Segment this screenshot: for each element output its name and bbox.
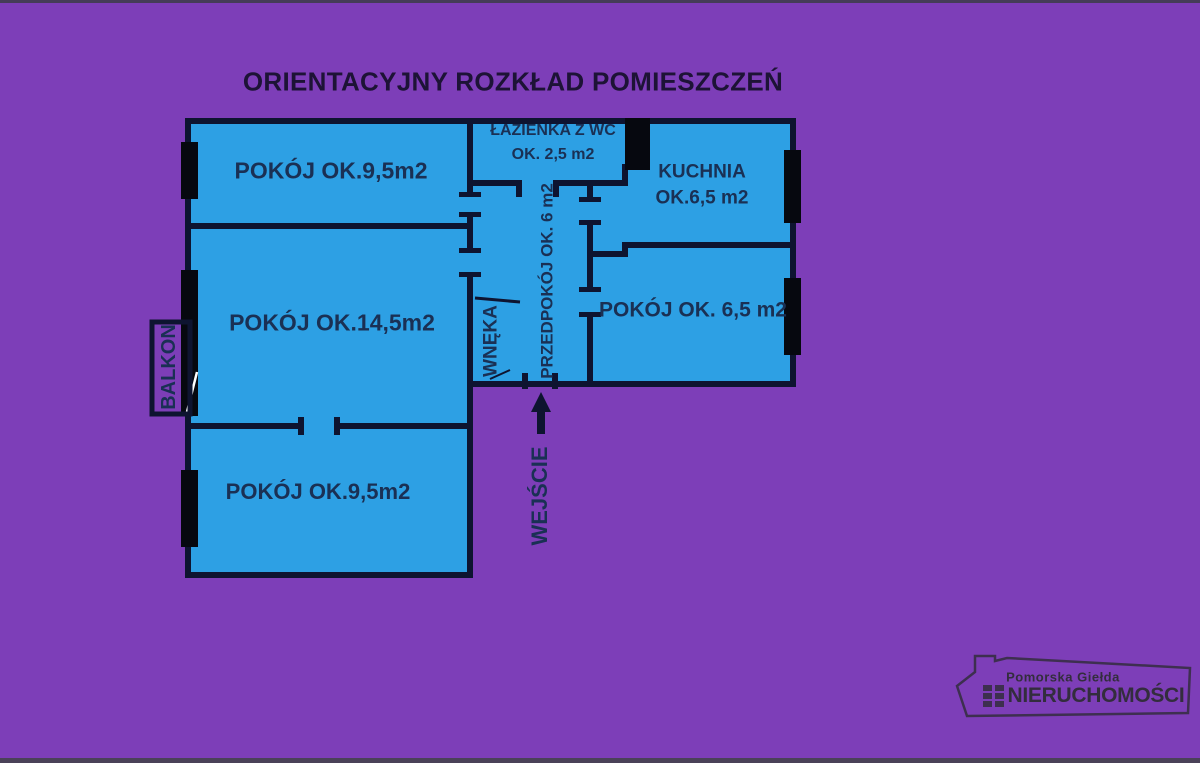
label-entrance: WEJŚCIE [529, 446, 551, 545]
label-kitchen-area: OK.6,5 m2 [656, 189, 749, 208]
window-kitchen [784, 150, 801, 223]
ventilation-shaft [625, 118, 650, 170]
logo-window-icon [983, 685, 1004, 707]
floorplan-drawing [0, 0, 1200, 763]
entrance-arrow-icon [531, 392, 551, 434]
label-hallway: PRZEDPOKÓJ OK. 6 m2 [539, 183, 556, 379]
label-room-right: POKÓJ OK. 6,5 m2 [599, 300, 787, 321]
label-niche: WNĘKA [482, 305, 501, 377]
logo-agency-type: NIERUCHOMOŚCI [1008, 684, 1185, 708]
floorplan-page: ORIENTACYJNY ROZKŁAD POMIESZCZEŃ [0, 0, 1200, 763]
label-balcony: BALKON [159, 324, 179, 410]
logo-agency-name: Pomorska Giełda [1006, 670, 1120, 685]
window-room-bottom-left [181, 470, 198, 547]
label-kitchen-name: KUCHNIA [658, 163, 746, 182]
label-room-top-left: POKÓJ OK.9,5m2 [234, 160, 427, 183]
label-room-middle-left: POKÓJ OK.14,5m2 [229, 312, 435, 335]
label-room-bottom-left: POKÓJ OK.9,5m2 [226, 481, 411, 503]
window-room-top-left [181, 142, 198, 199]
label-bathroom-name: ŁAZIENKA Z WC [490, 123, 616, 139]
label-bathroom-area: OK. 2,5 m2 [512, 147, 595, 163]
